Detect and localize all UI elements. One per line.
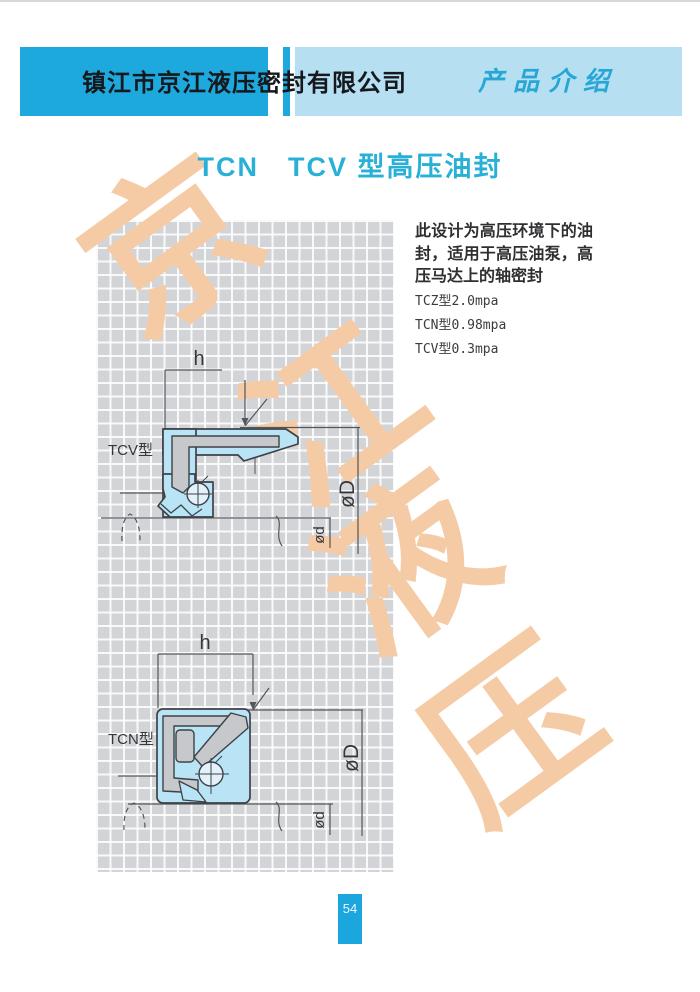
spec-line-tcn: TCN型0.98mpa (415, 314, 506, 338)
tcn-type-label: TCN型 (108, 731, 154, 748)
intro-paragraph: 此设计为高压环境下的油封，适用于高压油泵，高压马达上的轴密封 (415, 221, 593, 289)
tcv-shaft-diameter-label: ød (311, 526, 328, 544)
intro-block: 此设计为高压环境下的油封，适用于高压油泵，高压马达上的轴密封 (415, 221, 593, 289)
section-title: 产品介绍 (478, 47, 618, 116)
tcn-shaft-diameter-label: ød (311, 811, 328, 829)
tcn-height-dim-label: h (199, 632, 210, 654)
spec-line-tcz: TCZ型2.0mpa (415, 290, 506, 314)
seal-cross-section-diagrams: h TCV型 øD ød h TCN型 øD ød (95, 217, 395, 872)
company-name: 镇江市京江液压密封有限公司 (82, 47, 407, 116)
dimension-arrow (242, 418, 249, 426)
page-number-badge: 54 (338, 894, 362, 944)
tcv-height-dim-label: h (193, 348, 204, 370)
spec-line-tcv: TCV型0.3mpa (415, 338, 506, 362)
page-title: TCN TCV 型高压油封 (0, 145, 700, 184)
tcn-seal-shape (157, 709, 250, 803)
tcv-type-label: TCV型 (108, 442, 153, 459)
tcn-outer-diameter-label: øD (340, 744, 363, 772)
catalog-page: 镇江市京江液压密封有限公司 产品介绍 TCN TCV 型高压油封 京 江 液 压 (0, 0, 700, 992)
tcv-outer-diameter-label: øD (336, 480, 359, 508)
pressure-specs: TCZ型2.0mpa TCN型0.98mpa TCV型0.3mpa (415, 290, 506, 362)
tcv-seal-shape (158, 429, 298, 517)
